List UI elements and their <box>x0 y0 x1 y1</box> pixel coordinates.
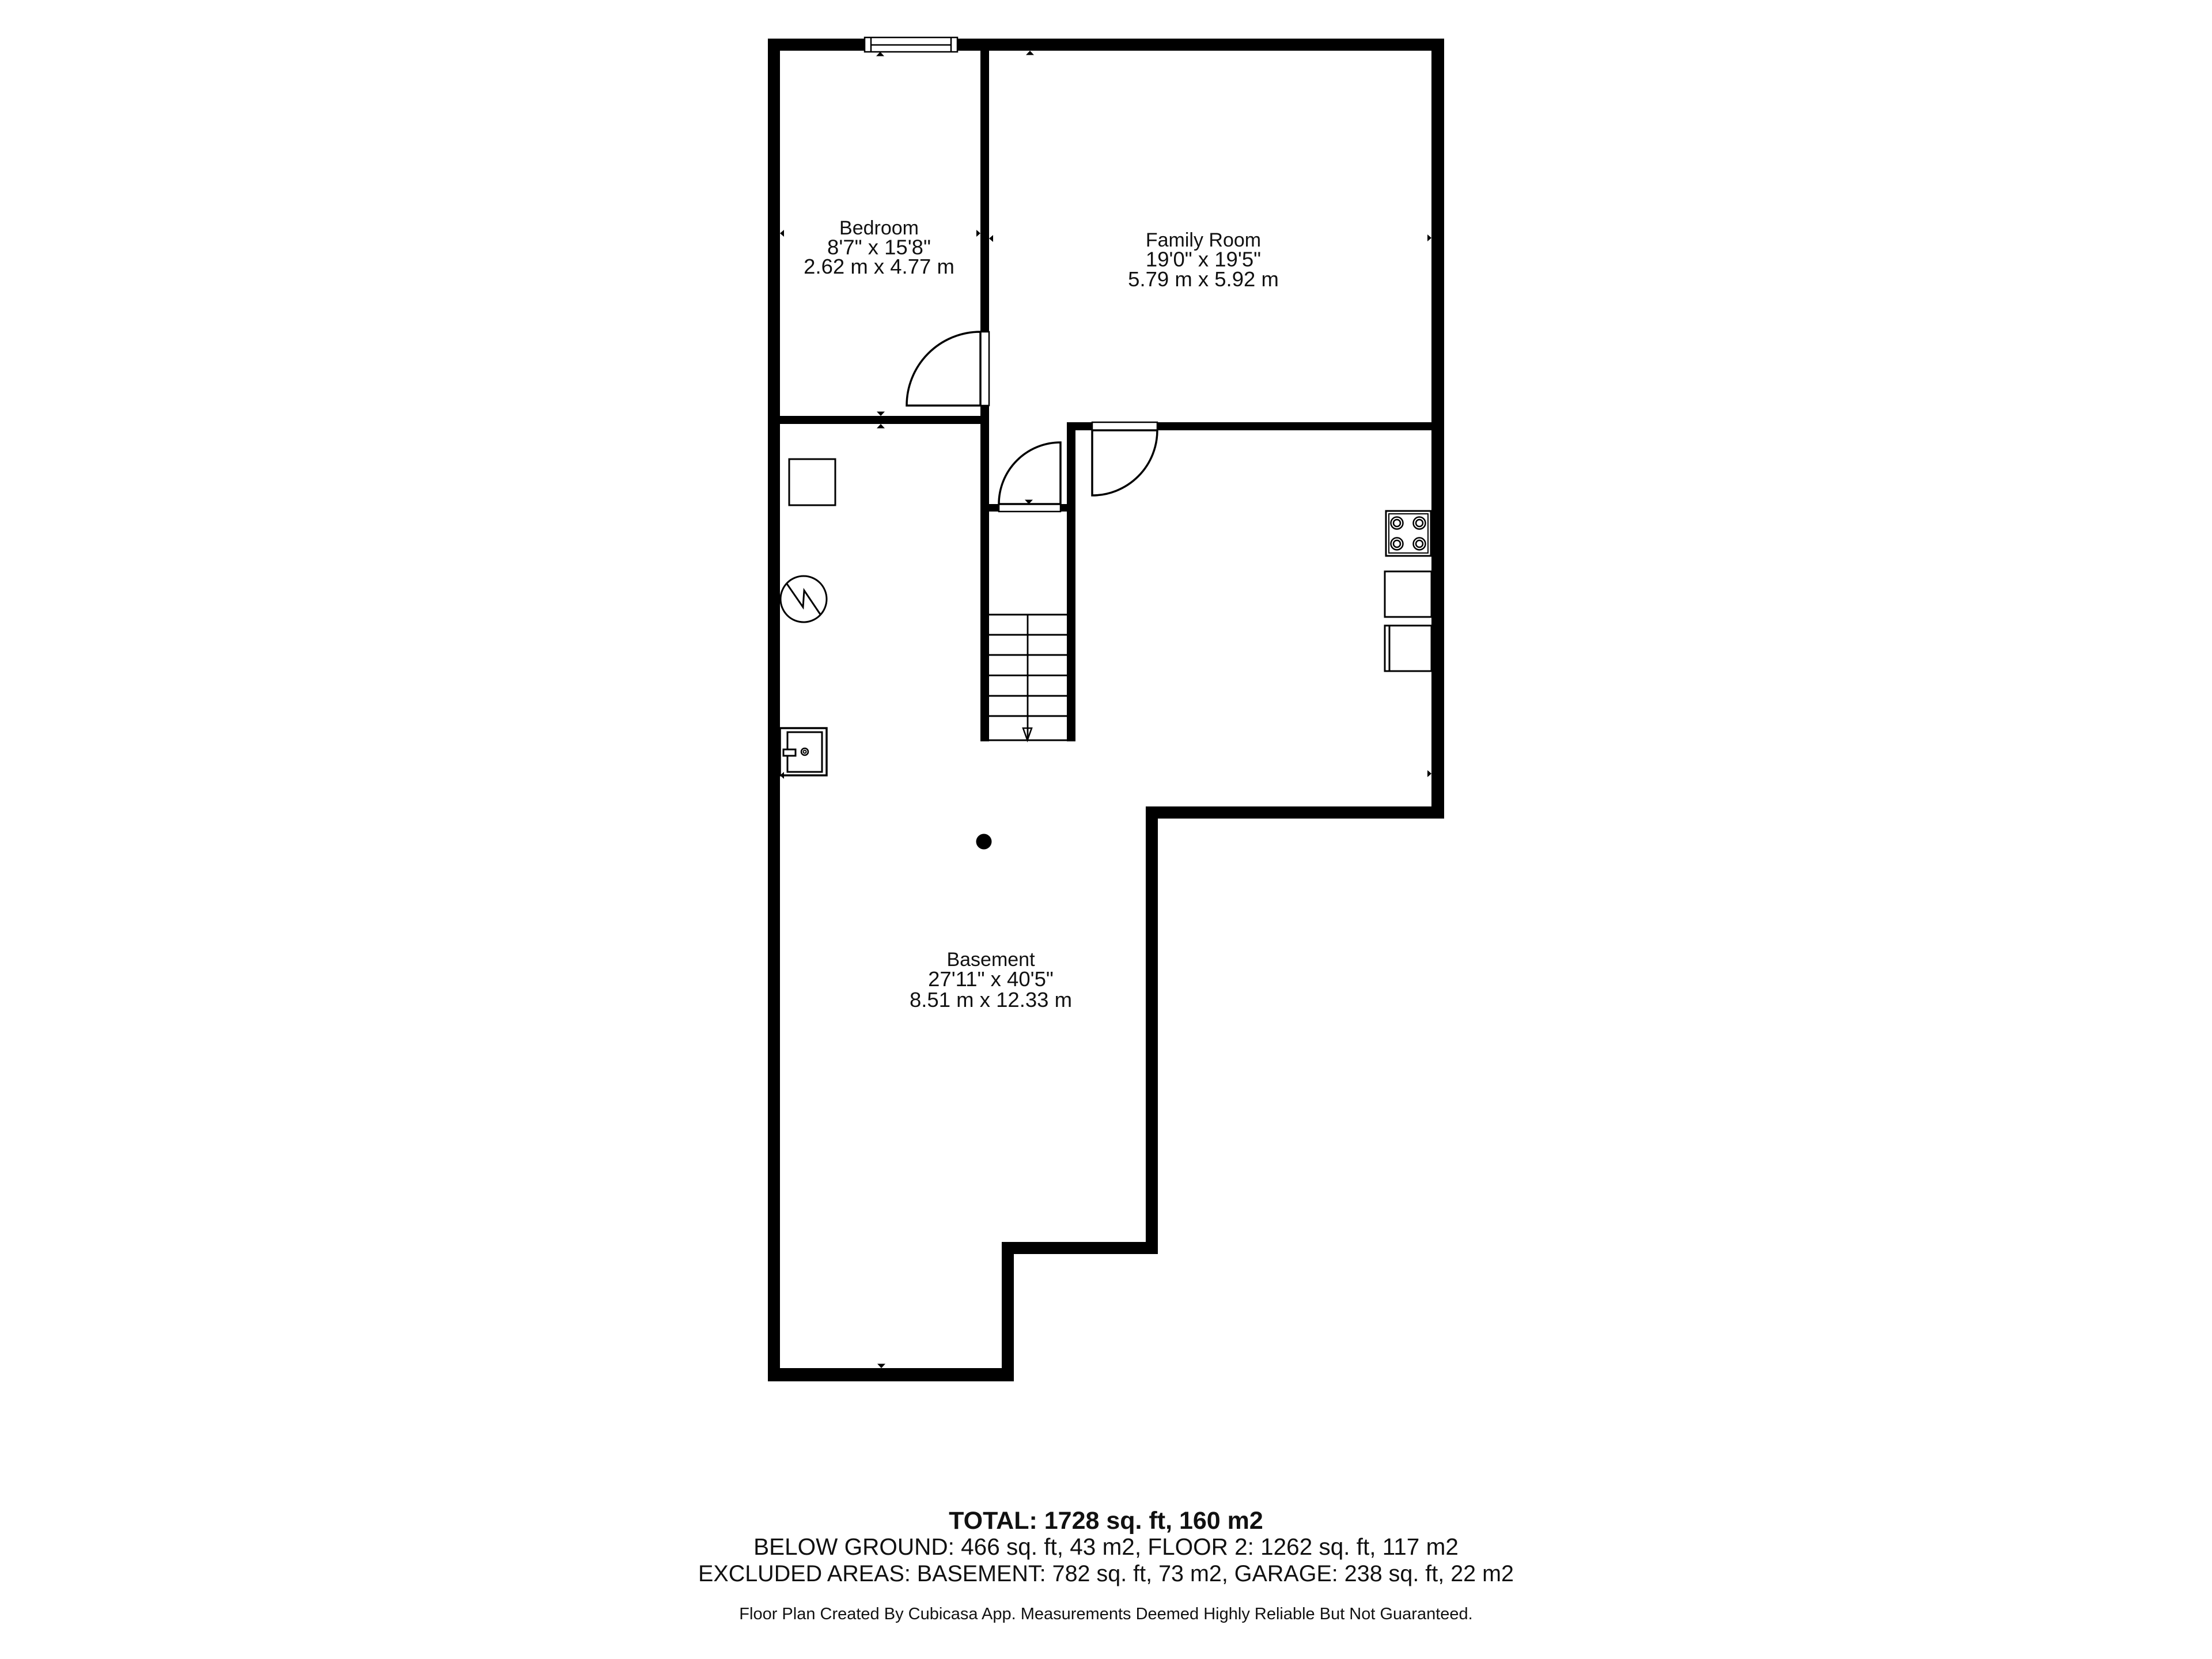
svg-text:2.62 m x 4.77 m: 2.62 m x 4.77 m <box>804 255 955 278</box>
svg-text:TOTAL: 1728 sq. ft, 160 m2: TOTAL: 1728 sq. ft, 160 m2 <box>949 1507 1263 1535</box>
svg-text:Floor Plan Created By Cubicasa: Floor Plan Created By Cubicasa App. Meas… <box>739 1605 1472 1623</box>
svg-text:8.51 m x 12.33 m: 8.51 m x 12.33 m <box>910 988 1072 1012</box>
svg-text:27'11" x 40'5": 27'11" x 40'5" <box>928 967 1054 991</box>
svg-text:BELOW GROUND: 466 sq. ft, 43 m: BELOW GROUND: 466 sq. ft, 43 m2, FLOOR 2… <box>753 1533 1459 1560</box>
svg-text:5.79 m x 5.92 m: 5.79 m x 5.92 m <box>1128 267 1279 291</box>
svg-text:EXCLUDED AREAS: BASEMENT: 782: EXCLUDED AREAS: BASEMENT: 782 sq. ft, 73… <box>698 1561 1514 1586</box>
